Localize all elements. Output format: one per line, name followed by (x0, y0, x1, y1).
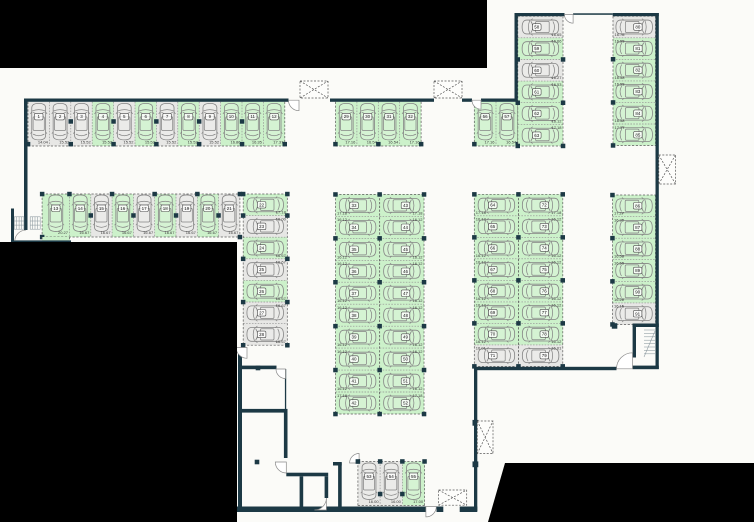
svg-text:16.20: 16.20 (614, 297, 625, 302)
svg-text:40: 40 (351, 357, 357, 362)
svg-text:17.18: 17.18 (276, 210, 287, 215)
svg-text:16.53: 16.53 (615, 75, 626, 80)
svg-text:57: 57 (504, 114, 510, 119)
svg-text:15.52: 15.52 (188, 139, 199, 144)
svg-text:69: 69 (490, 310, 496, 315)
svg-text:16.12: 16.12 (412, 254, 423, 259)
svg-text:16.12: 16.12 (412, 217, 423, 222)
svg-text:21: 21 (227, 206, 233, 211)
svg-text:16.01: 16.01 (551, 346, 562, 351)
svg-text:17: 17 (142, 206, 148, 211)
svg-text:16.16: 16.16 (614, 304, 625, 309)
svg-text:16.65: 16.65 (551, 32, 562, 37)
svg-text:29: 29 (344, 114, 350, 119)
svg-text:15.52: 15.52 (145, 139, 156, 144)
svg-text:41: 41 (351, 379, 357, 384)
svg-text:16.00: 16.00 (276, 216, 287, 221)
svg-text:71: 71 (490, 353, 496, 358)
svg-text:85: 85 (635, 132, 641, 137)
svg-text:61: 61 (534, 90, 540, 95)
svg-text:17.18: 17.18 (337, 393, 348, 398)
svg-text:16.12: 16.12 (476, 339, 487, 344)
svg-text:16.67: 16.67 (186, 230, 197, 235)
svg-text:39: 39 (351, 335, 357, 340)
svg-text:15.52: 15.52 (102, 139, 113, 144)
svg-text:17.27: 17.27 (614, 211, 625, 216)
svg-text:13: 13 (53, 206, 59, 211)
svg-text:15.52: 15.52 (209, 139, 220, 144)
svg-text:76: 76 (542, 289, 548, 294)
svg-text:16.01: 16.01 (476, 346, 487, 351)
svg-text:63: 63 (534, 133, 540, 138)
svg-text:15.52: 15.52 (81, 139, 92, 144)
svg-text:48: 48 (403, 313, 409, 318)
svg-text:17.18: 17.18 (476, 210, 487, 215)
svg-text:52: 52 (403, 401, 409, 406)
svg-text:79: 79 (542, 353, 548, 358)
svg-text:31: 31 (386, 114, 392, 119)
svg-text:75: 75 (542, 267, 548, 272)
svg-text:34: 34 (351, 225, 357, 230)
svg-text:33: 33 (351, 203, 357, 208)
svg-text:56: 56 (483, 114, 489, 119)
svg-text:15.52: 15.52 (166, 139, 177, 144)
svg-text:20.27: 20.27 (58, 230, 69, 235)
svg-text:16.54: 16.54 (367, 139, 378, 144)
svg-text:11: 11 (250, 114, 255, 119)
svg-text:17.18: 17.18 (412, 393, 423, 398)
svg-text:70: 70 (490, 332, 496, 337)
svg-text:54: 54 (389, 474, 395, 479)
svg-text:16.67: 16.67 (101, 230, 112, 235)
svg-text:16.53: 16.53 (615, 118, 626, 123)
svg-text:27: 27 (259, 310, 265, 315)
svg-text:16.12: 16.12 (551, 217, 562, 222)
svg-text:78: 78 (542, 332, 548, 337)
svg-text:16.12: 16.12 (337, 305, 348, 310)
svg-text:43: 43 (403, 203, 409, 208)
svg-text:35: 35 (351, 247, 357, 252)
svg-text:87: 87 (635, 225, 641, 230)
svg-text:16.12: 16.12 (337, 349, 348, 354)
svg-text:14.04: 14.04 (38, 139, 49, 144)
svg-text:15.52: 15.52 (59, 139, 70, 144)
svg-text:16.12: 16.12 (337, 254, 348, 259)
svg-text:16.12: 16.12 (412, 298, 423, 303)
svg-text:73: 73 (542, 224, 548, 229)
svg-text:25: 25 (259, 267, 265, 272)
svg-text:16.67: 16.67 (276, 339, 287, 344)
svg-text:84: 84 (635, 111, 641, 116)
svg-text:16.86: 16.86 (230, 139, 241, 144)
svg-text:83: 83 (635, 89, 641, 94)
svg-text:47: 47 (403, 291, 409, 296)
svg-text:68: 68 (490, 289, 496, 294)
svg-text:16.12: 16.12 (337, 217, 348, 222)
svg-text:72: 72 (542, 203, 548, 208)
svg-text:16.12: 16.12 (412, 349, 423, 354)
svg-text:17.00: 17.00 (413, 499, 424, 504)
svg-text:16.54: 16.54 (506, 139, 517, 144)
svg-text:16.67: 16.67 (228, 230, 239, 235)
svg-text:16.53: 16.53 (614, 261, 625, 266)
svg-text:16.00: 16.00 (369, 499, 380, 504)
svg-text:16.53: 16.53 (615, 39, 626, 44)
svg-text:16.12: 16.12 (412, 342, 423, 347)
svg-text:20: 20 (205, 206, 211, 211)
svg-text:16.53: 16.53 (615, 82, 626, 87)
svg-text:90: 90 (635, 290, 641, 295)
svg-text:89: 89 (635, 268, 641, 273)
svg-text:30: 30 (365, 114, 371, 119)
svg-text:16.66: 16.66 (551, 39, 562, 44)
svg-text:16.67: 16.67 (79, 230, 90, 235)
svg-text:16.12: 16.12 (551, 253, 562, 258)
svg-text:16.12: 16.12 (337, 261, 348, 266)
svg-text:65: 65 (490, 224, 496, 229)
svg-text:45: 45 (403, 247, 409, 252)
svg-text:16.12: 16.12 (476, 296, 487, 301)
svg-text:88: 88 (635, 247, 641, 252)
svg-text:16.67: 16.67 (276, 260, 287, 265)
svg-text:16.67: 16.67 (276, 303, 287, 308)
svg-text:17.18: 17.18 (337, 210, 348, 215)
svg-text:67: 67 (490, 267, 496, 272)
svg-text:16.67: 16.67 (164, 230, 175, 235)
svg-text:16.53: 16.53 (551, 82, 562, 87)
svg-text:42: 42 (351, 401, 357, 406)
svg-text:16.12: 16.12 (551, 118, 562, 123)
svg-text:18: 18 (163, 206, 169, 211)
svg-text:16.35: 16.35 (252, 139, 263, 144)
svg-text:16.67: 16.67 (207, 230, 218, 235)
svg-text:36: 36 (351, 269, 357, 274)
svg-text:50: 50 (403, 357, 409, 362)
svg-text:32: 32 (408, 114, 414, 119)
svg-text:16.12: 16.12 (476, 253, 487, 258)
svg-text:16.12: 16.12 (337, 386, 348, 391)
svg-text:17.37: 17.37 (615, 125, 626, 130)
svg-text:16.12: 16.12 (476, 217, 487, 222)
svg-text:16.12: 16.12 (337, 298, 348, 303)
svg-text:16.53: 16.53 (614, 254, 625, 259)
svg-text:44: 44 (403, 225, 409, 230)
svg-text:17.16: 17.16 (484, 139, 495, 144)
svg-text:15.52: 15.52 (123, 139, 134, 144)
svg-text:26: 26 (259, 289, 265, 294)
svg-text:60: 60 (534, 68, 540, 73)
svg-text:46: 46 (403, 269, 409, 274)
svg-text:16.12: 16.12 (412, 305, 423, 310)
svg-text:16.12: 16.12 (476, 303, 487, 308)
svg-text:17.16: 17.16 (410, 139, 421, 144)
svg-text:16.27: 16.27 (551, 75, 562, 80)
svg-text:16.12: 16.12 (337, 342, 348, 347)
svg-text:16.12: 16.12 (551, 339, 562, 344)
svg-text:17.37: 17.37 (273, 139, 284, 144)
svg-text:16.12: 16.12 (551, 260, 562, 265)
svg-text:23: 23 (259, 224, 265, 229)
svg-text:16: 16 (120, 206, 126, 211)
svg-text:28: 28 (259, 332, 265, 337)
svg-text:38: 38 (351, 313, 357, 318)
svg-text:17.16: 17.16 (345, 139, 356, 144)
svg-text:16.12: 16.12 (476, 260, 487, 265)
svg-text:24: 24 (259, 246, 265, 251)
svg-text:81: 81 (635, 46, 641, 51)
svg-text:22: 22 (259, 202, 265, 207)
svg-text:55: 55 (411, 474, 417, 479)
svg-text:16.32: 16.32 (614, 217, 625, 222)
svg-text:58: 58 (534, 25, 540, 30)
svg-text:17.18: 17.18 (551, 125, 562, 130)
svg-text:14: 14 (78, 206, 84, 211)
svg-text:16.67: 16.67 (276, 253, 287, 258)
svg-text:16.67: 16.67 (276, 296, 287, 301)
svg-text:77: 77 (542, 310, 548, 315)
svg-text:16.75: 16.75 (615, 32, 626, 37)
svg-text:64: 64 (490, 203, 496, 208)
svg-text:49: 49 (403, 335, 409, 340)
svg-text:16.67: 16.67 (143, 230, 154, 235)
svg-text:16.54: 16.54 (388, 139, 399, 144)
svg-text:37: 37 (351, 291, 357, 296)
svg-text:16.67: 16.67 (122, 230, 133, 235)
svg-text:16.00: 16.00 (391, 499, 402, 504)
svg-text:80: 80 (635, 25, 641, 30)
svg-text:66: 66 (490, 246, 496, 251)
svg-text:16.12: 16.12 (412, 386, 423, 391)
svg-text:15: 15 (99, 206, 105, 211)
svg-text:17.18: 17.18 (551, 210, 562, 215)
svg-text:10: 10 (229, 114, 235, 119)
svg-text:74: 74 (542, 246, 548, 251)
svg-text:82: 82 (635, 68, 641, 73)
svg-text:19: 19 (184, 206, 190, 211)
svg-text:12: 12 (272, 114, 278, 119)
svg-text:53: 53 (366, 474, 372, 479)
svg-text:59: 59 (534, 46, 540, 51)
svg-text:86: 86 (635, 203, 641, 208)
svg-text:16.12: 16.12 (412, 261, 423, 266)
svg-text:16.12: 16.12 (551, 296, 562, 301)
svg-text:17.18: 17.18 (412, 210, 423, 215)
svg-text:91: 91 (635, 311, 641, 316)
svg-text:16.12: 16.12 (551, 303, 562, 308)
svg-text:62: 62 (534, 111, 540, 116)
svg-text:51: 51 (403, 379, 409, 384)
